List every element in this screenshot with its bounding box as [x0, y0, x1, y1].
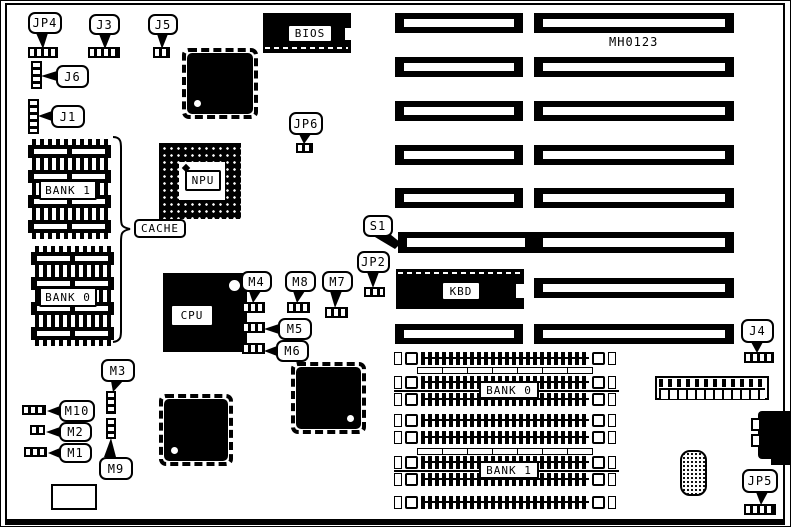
m7-leader [330, 291, 342, 308]
cache-brace [113, 137, 130, 342]
callout-m8: M8 [285, 271, 316, 292]
j3-leader [99, 34, 111, 49]
cache-bank0-label: BANK 0 [39, 287, 97, 307]
jp2-leader [367, 272, 379, 288]
callout-m5: M5 [278, 318, 312, 340]
callout-m7: M7 [322, 271, 353, 292]
m5-leader [264, 324, 279, 334]
callout-j4: J4 [741, 319, 774, 343]
j6-leader [41, 71, 57, 81]
m2-leader [46, 427, 60, 437]
callout-j1: J1 [51, 105, 85, 128]
callout-s1: S1 [363, 215, 393, 237]
callout-m1: M1 [59, 443, 92, 463]
j1-leader [38, 111, 52, 121]
callout-jp2: JP2 [357, 251, 390, 273]
m8-leader [293, 291, 305, 303]
j5-leader [157, 34, 168, 49]
callout-jp4: JP4 [28, 12, 62, 34]
j4-leader [751, 342, 763, 353]
jp4-leader [36, 33, 48, 49]
motherboard-diagram: MH0123 BIOS NPU CPU BANK 1 BANK 0 CACHE [0, 0, 791, 527]
callout-m6: M6 [276, 340, 309, 362]
npu-label: NPU [185, 170, 221, 191]
m3-leader [111, 381, 123, 392]
callout-j6: J6 [56, 65, 89, 88]
cpu-label: CPU [171, 305, 213, 326]
callout-m4: M4 [241, 271, 272, 292]
callout-m10: M10 [59, 400, 95, 422]
kbd-label: KBD [442, 282, 480, 300]
callout-j5: J5 [148, 14, 178, 35]
leader-lines [1, 1, 791, 527]
m4-leader [249, 291, 261, 303]
callout-j3: J3 [89, 14, 120, 35]
callout-m2: M2 [59, 422, 92, 442]
bios-label: BIOS [288, 25, 332, 42]
callout-m3: M3 [101, 359, 135, 382]
jp5-leader [756, 492, 768, 505]
jp6-leader [299, 134, 311, 144]
cache-label: CACHE [134, 219, 186, 238]
cache-bank1-label: BANK 1 [39, 180, 97, 200]
m9-leader [104, 438, 116, 457]
callout-jp5: JP5 [742, 469, 778, 493]
callout-jp6: JP6 [289, 112, 323, 135]
callout-m9: M9 [99, 457, 133, 480]
